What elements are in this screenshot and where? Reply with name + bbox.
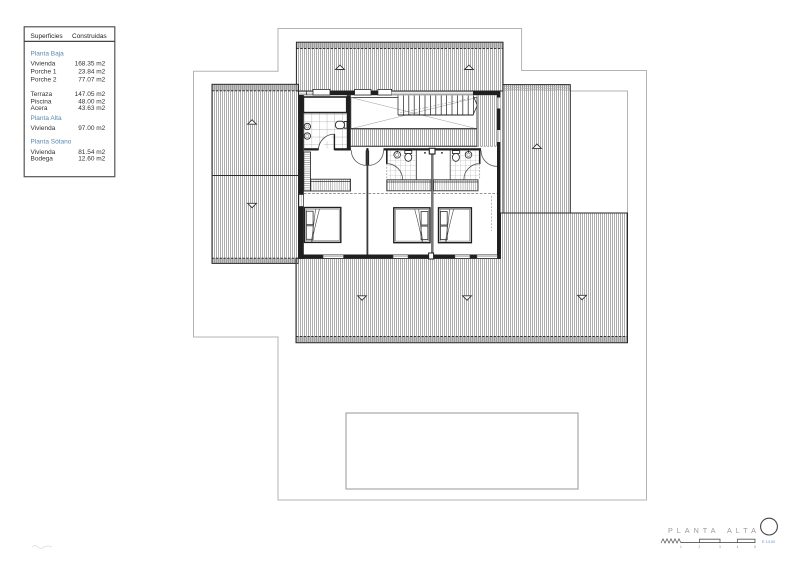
svg-text:12.60 m2: 12.60 m2 (78, 156, 105, 163)
svg-text:Terraza: Terraza (31, 91, 53, 98)
svg-text:147.05 m2: 147.05 m2 (75, 91, 106, 98)
svg-text:Superficies: Superficies (31, 33, 64, 40)
svg-text:Acera: Acera (31, 105, 48, 112)
svg-text:Planta Sótano: Planta Sótano (31, 139, 72, 146)
svg-text:3: 3 (719, 545, 721, 549)
svg-text:Construidas: Construidas (72, 33, 107, 40)
svg-text:PLANTA: PLANTA (668, 526, 719, 535)
svg-text:2: 2 (699, 545, 701, 549)
svg-text:43.63 m2: 43.63 m2 (78, 105, 105, 112)
svg-text:Vivienda: Vivienda (31, 125, 56, 132)
svg-text:ALTA: ALTA (727, 526, 760, 535)
svg-text:4: 4 (737, 545, 739, 549)
svg-text:E 1/100: E 1/100 (762, 540, 775, 544)
svg-text:Bodega: Bodega (31, 156, 54, 163)
svg-text:1: 1 (680, 545, 682, 549)
svg-text:Planta Alta: Planta Alta (31, 115, 62, 122)
svg-text:97.00 m2: 97.00 m2 (78, 125, 105, 132)
svg-text:77.07 m2: 77.07 m2 (78, 77, 105, 84)
svg-text:23.84 m2: 23.84 m2 (78, 69, 105, 76)
svg-text:168.35 m2: 168.35 m2 (75, 61, 106, 68)
svg-text:Porche 2: Porche 2 (31, 77, 57, 84)
svg-text:Vivienda: Vivienda (31, 61, 56, 68)
svg-text:5: 5 (754, 545, 756, 549)
svg-text:Porche 1: Porche 1 (31, 69, 57, 76)
svg-text:Planta Baja: Planta Baja (31, 51, 65, 58)
